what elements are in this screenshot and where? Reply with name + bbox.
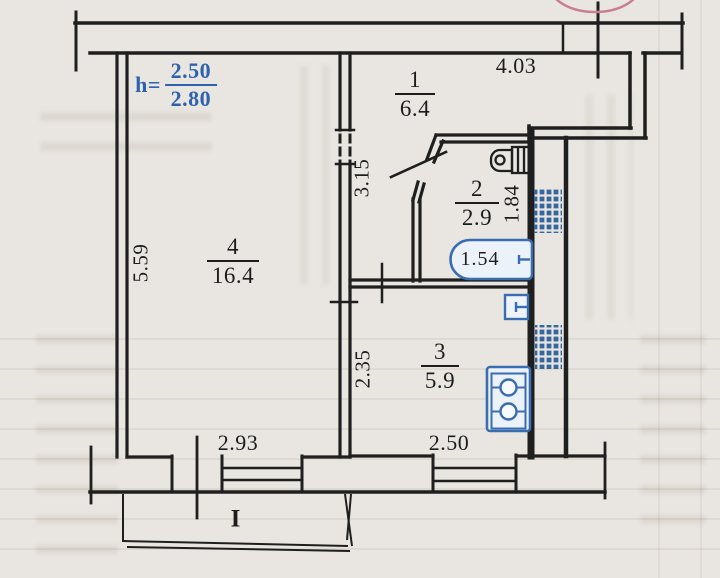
room-label-bathroom: 2 2.9 xyxy=(455,177,499,229)
height-denominator: 2.80 xyxy=(171,88,212,110)
stamp-circle xyxy=(549,0,641,12)
stove-icon xyxy=(487,367,530,431)
dimension-kitchen-depth: 2.35 xyxy=(353,350,374,389)
room-number: 1 xyxy=(409,68,421,91)
room-label-kitchen: 3 5.9 xyxy=(421,340,459,392)
dimension-hall-depth: 3.15 xyxy=(352,159,373,198)
balcony-label: I xyxy=(231,507,242,532)
fraction-bar xyxy=(395,93,435,95)
floor-plan-linework xyxy=(0,0,720,578)
room-label-hall: 1 6.4 xyxy=(395,68,435,120)
ceiling-height-note: h= 2.50 2.80 xyxy=(135,60,217,110)
height-note-prefix: h= xyxy=(135,74,161,96)
room-area: 2.9 xyxy=(462,206,492,229)
room-number: 3 xyxy=(434,340,446,363)
dimension-bathtub-length: 1.54 xyxy=(461,249,500,269)
floor-plan-canvas: h= 2.50 2.80 1 6.4 2 2.9 3 5.9 4 16.4 4.… xyxy=(0,0,720,578)
room-area: 16.4 xyxy=(212,264,254,287)
height-note-fraction: 2.50 2.80 xyxy=(165,60,217,110)
vent-duct-icon xyxy=(534,189,562,233)
vent-duct-icon xyxy=(535,325,562,369)
fraction-bar xyxy=(207,260,259,262)
fraction-bar xyxy=(421,365,459,367)
toilet-icon xyxy=(491,147,530,173)
dimension-living-depth: 5.59 xyxy=(131,244,152,283)
fraction-bar xyxy=(455,202,499,204)
room-area: 5.9 xyxy=(425,369,455,392)
dimension-living-width: 2.93 xyxy=(218,432,259,454)
room-number: 2 xyxy=(471,177,483,200)
room-number: 4 xyxy=(227,235,239,258)
sink-icon xyxy=(505,295,528,319)
dimension-hall-width: 4.03 xyxy=(496,55,537,77)
dimension-kitchen-width: 2.50 xyxy=(429,432,470,454)
dimension-bathroom-depth: 1.84 xyxy=(502,185,523,224)
room-label-living: 4 16.4 xyxy=(207,235,259,287)
room-area: 6.4 xyxy=(400,97,430,120)
height-numerator: 2.50 xyxy=(171,60,212,82)
